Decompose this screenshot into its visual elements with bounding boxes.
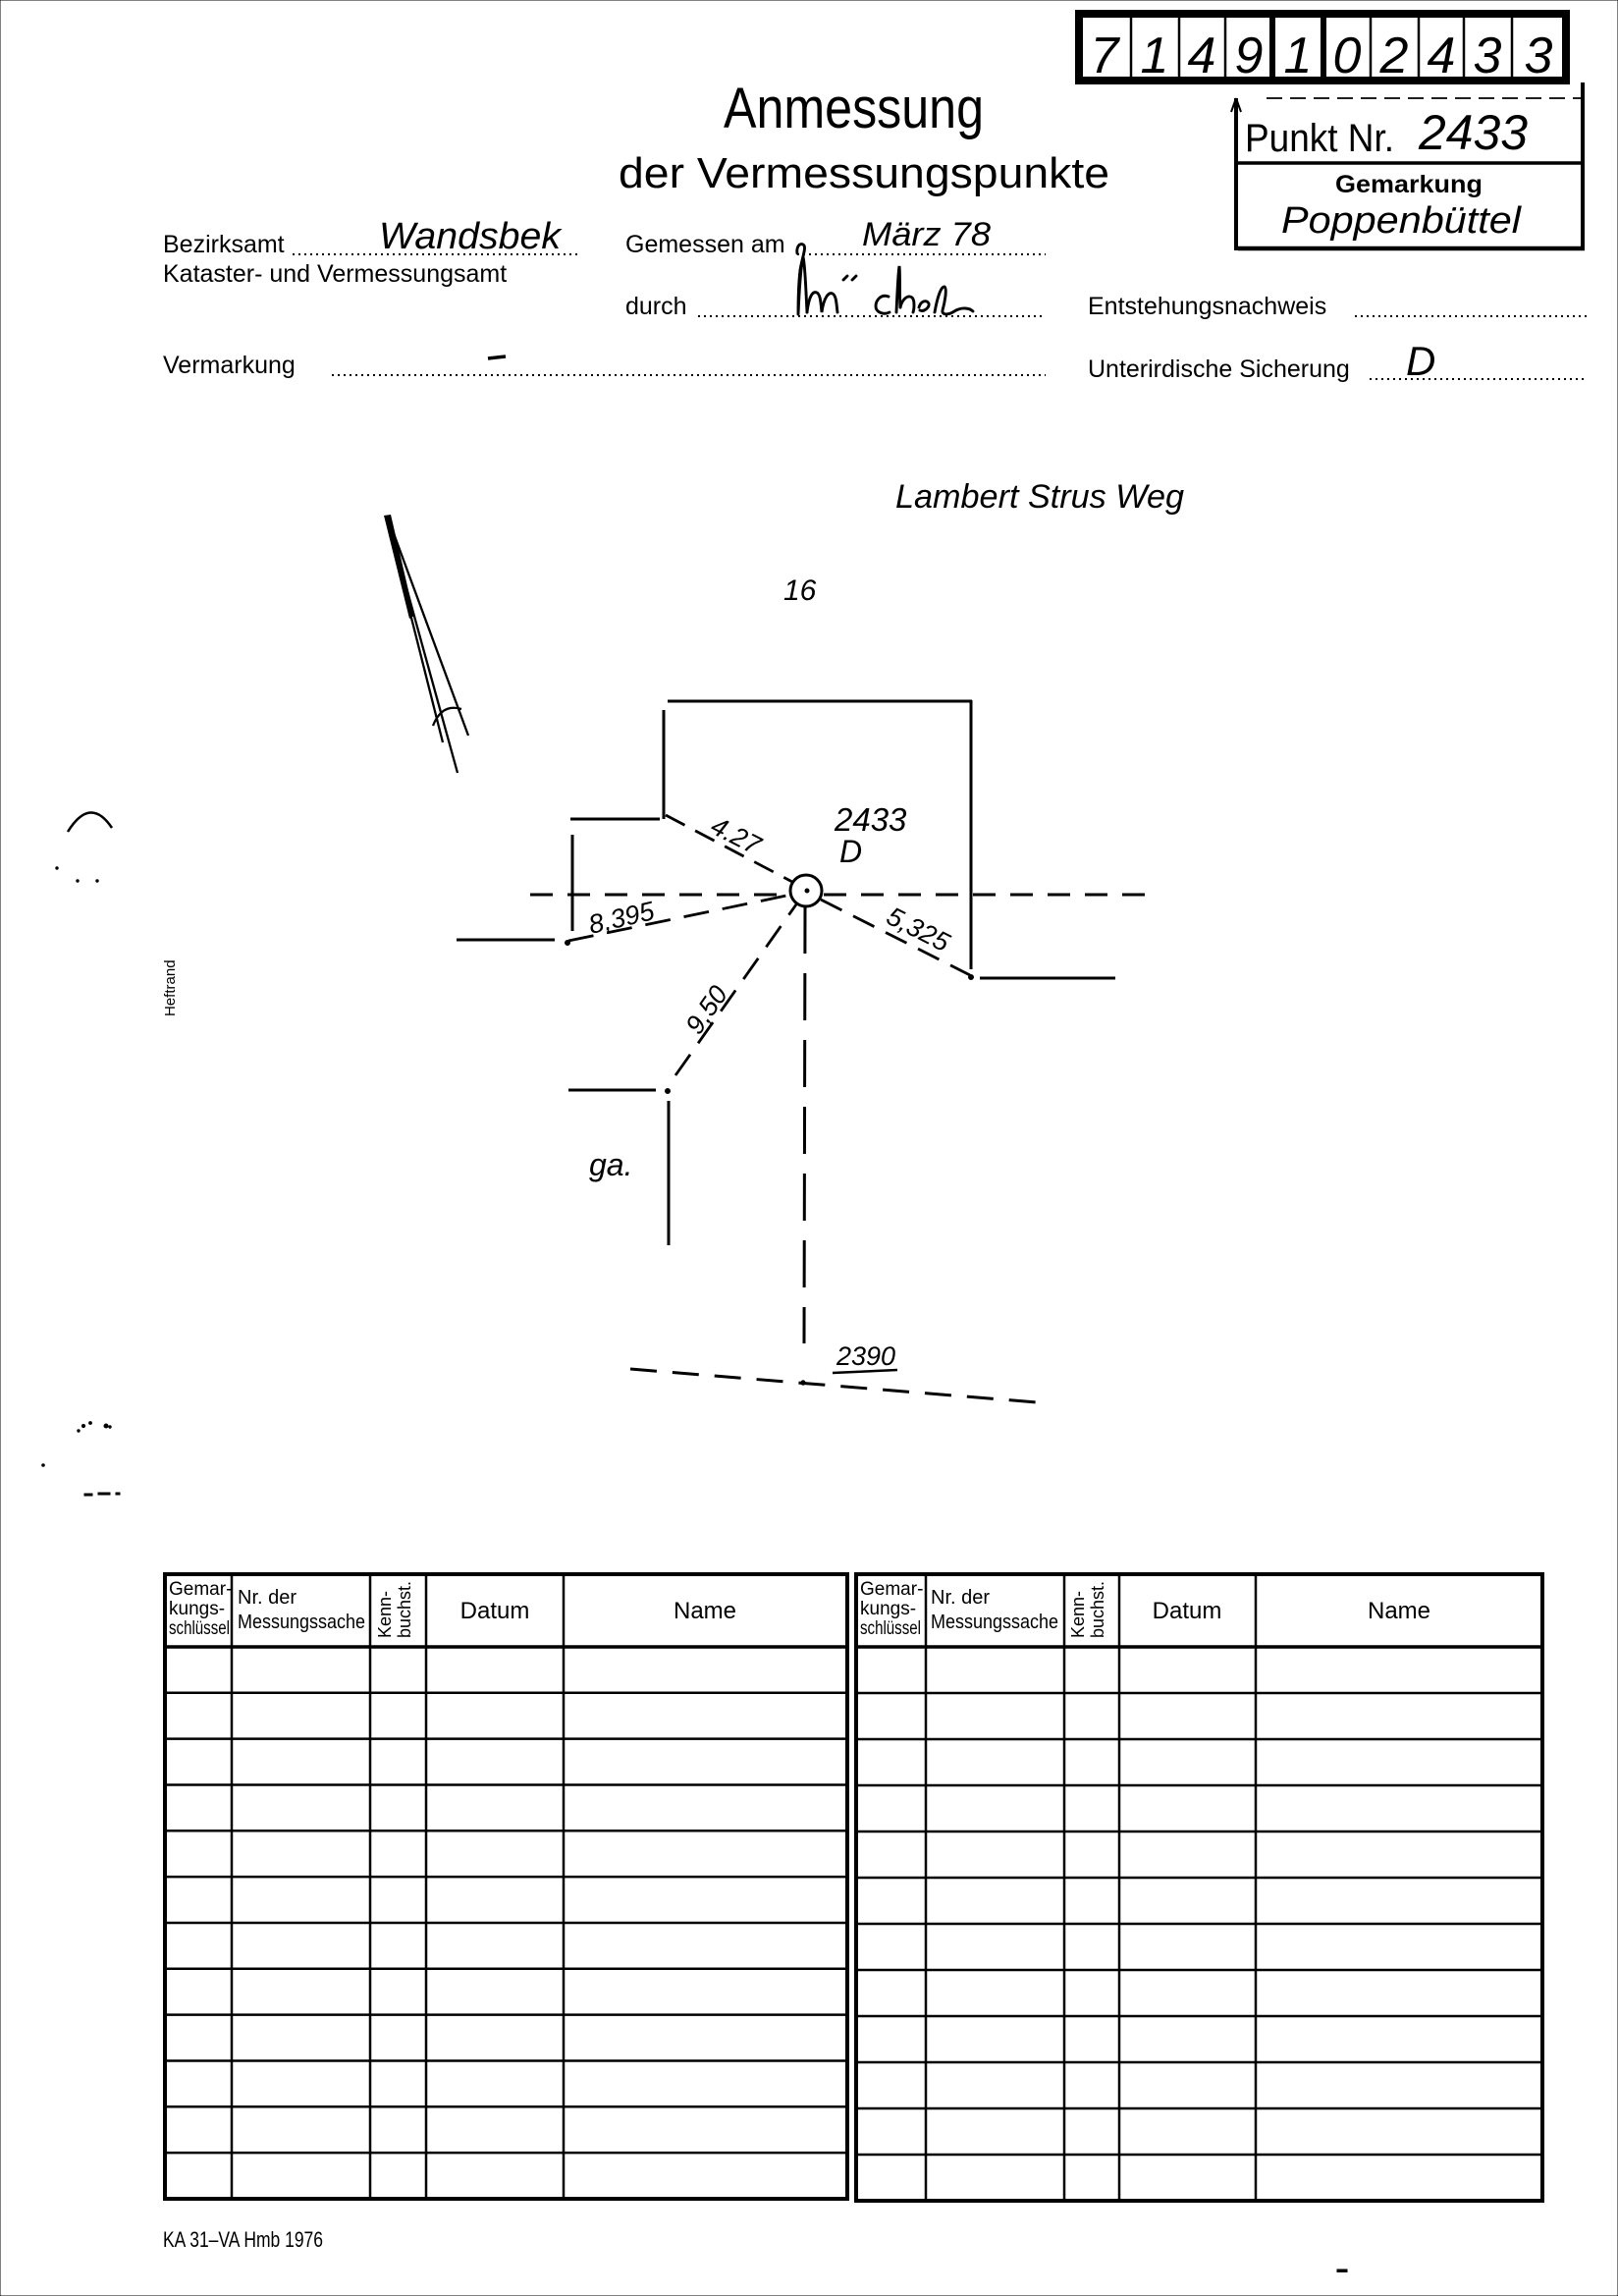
svg-text:Gemar-: Gemar- [169, 1579, 232, 1600]
svg-text:buchst.: buchst. [1088, 1581, 1107, 1638]
svg-text:D: D [839, 834, 862, 869]
svg-text:Datum: Datum [460, 1598, 530, 1624]
svg-text:buchst.: buchst. [395, 1581, 414, 1638]
svg-text:Anmessung: Anmessung [724, 77, 984, 140]
svg-text:Nr. der: Nr. der [931, 1587, 990, 1609]
svg-text:Kenn-: Kenn- [1068, 1591, 1088, 1638]
svg-text:Gemessen am: Gemessen am [625, 231, 785, 258]
svg-text:D: D [1406, 338, 1435, 384]
svg-text:Entstehungsnachweis: Entstehungsnachweis [1088, 293, 1326, 320]
svg-text:3: 3 [1525, 27, 1553, 84]
svg-text:Unterirdische Sicherung: Unterirdische Sicherung [1088, 355, 1350, 383]
svg-text:Gemarkung: Gemarkung [1335, 171, 1483, 198]
svg-text:9: 9 [1235, 27, 1264, 84]
svg-text:Wandsbek: Wandsbek [379, 216, 563, 257]
svg-text:KA 31–VA Hmb 1976: KA 31–VA Hmb 1976 [163, 2227, 323, 2252]
svg-text:ga.: ga. [589, 1147, 632, 1182]
svg-text:2433: 2433 [834, 801, 907, 838]
svg-text:Nr. der: Nr. der [238, 1587, 297, 1609]
svg-text:4: 4 [1428, 27, 1456, 84]
svg-text:Lambert Strus Weg: Lambert Strus Weg [895, 478, 1184, 516]
svg-text:Poppenbüttel: Poppenbüttel [1281, 200, 1523, 242]
svg-text:kungs-: kungs- [169, 1599, 225, 1619]
svg-text:Kataster- und Vermessungsamt: Kataster- und Vermessungsamt [163, 260, 507, 288]
svg-text:Vermarkung: Vermarkung [163, 352, 296, 379]
svg-text:Name: Name [674, 1598, 736, 1624]
svg-text:Kenn-: Kenn- [375, 1591, 395, 1638]
svg-text:Heftrand: Heftrand [162, 959, 179, 1016]
svg-text:1: 1 [1141, 27, 1169, 84]
svg-text:0: 0 [1333, 27, 1362, 84]
svg-text:16: 16 [783, 574, 817, 607]
svg-text:1: 1 [1284, 27, 1313, 84]
svg-text:2: 2 [1379, 27, 1409, 84]
svg-text:Bezirksamt: Bezirksamt [163, 231, 285, 258]
svg-text:4: 4 [1188, 27, 1216, 84]
svg-text:durch: durch [625, 293, 687, 320]
svg-text:schlüssel: schlüssel [169, 1618, 230, 1639]
svg-text:Datum: Datum [1153, 1598, 1222, 1624]
svg-text:März 78: März 78 [862, 216, 991, 253]
svg-text:2433: 2433 [1418, 105, 1528, 160]
svg-text:Messungssache: Messungssache [931, 1612, 1058, 1633]
svg-text:der Vermessungspunkte: der Vermessungspunkte [619, 149, 1109, 197]
svg-text:3: 3 [1474, 27, 1502, 84]
svg-text:Punkt Nr.: Punkt Nr. [1245, 117, 1394, 160]
svg-text:Name: Name [1368, 1598, 1430, 1624]
svg-text:2390: 2390 [836, 1341, 895, 1371]
svg-text:Gemar-: Gemar- [860, 1579, 923, 1600]
svg-text:kungs-: kungs- [860, 1599, 916, 1619]
svg-text:schlüssel: schlüssel [860, 1618, 921, 1639]
svg-text:7: 7 [1091, 27, 1121, 84]
svg-text:Messungssache: Messungssache [238, 1612, 365, 1633]
